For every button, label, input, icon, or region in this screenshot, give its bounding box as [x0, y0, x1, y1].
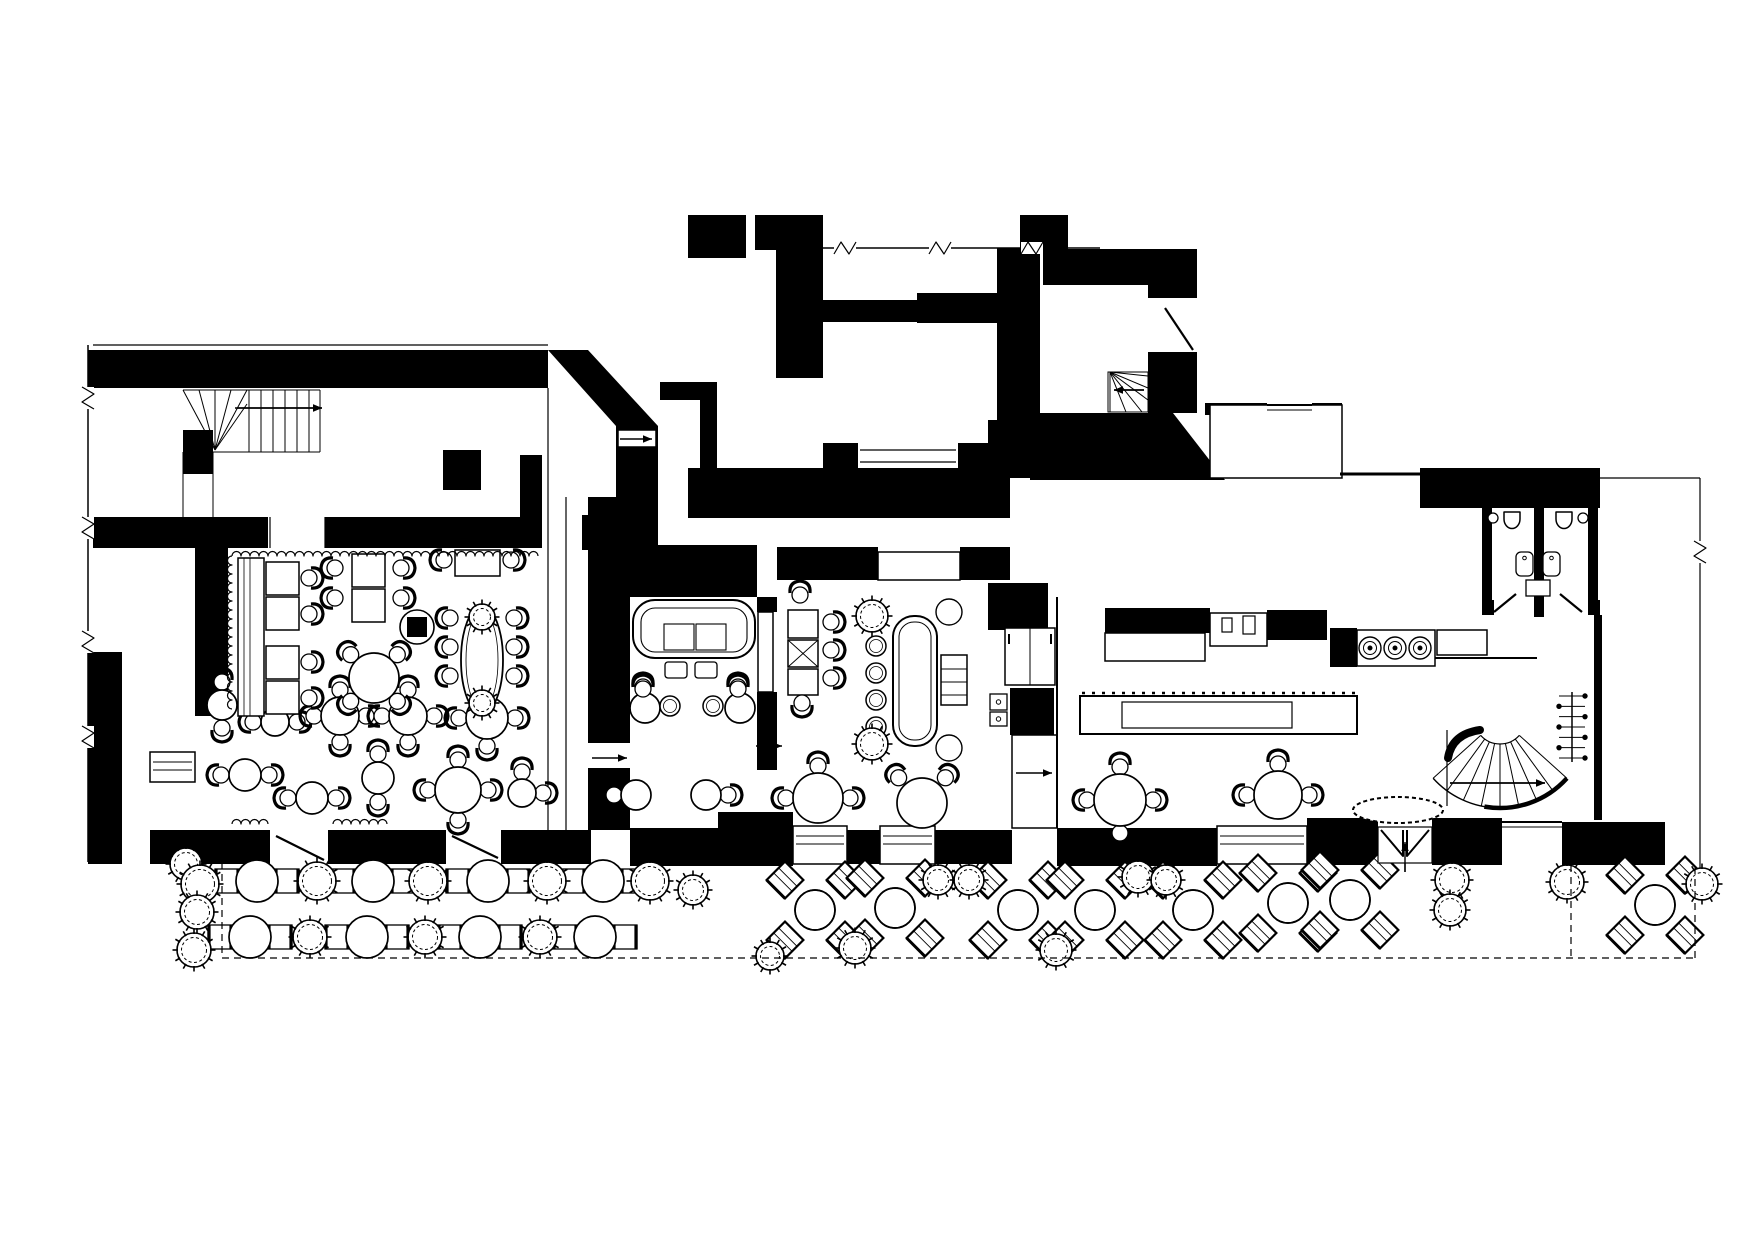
- door-leaf: [1165, 308, 1193, 350]
- circle: [823, 670, 839, 686]
- chair: [507, 708, 529, 728]
- round-seat: [936, 735, 962, 761]
- circle: [1583, 715, 1587, 719]
- terrace-table: [352, 860, 394, 902]
- circle: [506, 668, 522, 684]
- wall: [443, 450, 481, 490]
- wall-break-mark: [82, 517, 94, 539]
- wall: [960, 547, 1010, 580]
- wall: [1588, 600, 1600, 615]
- table-group: [600, 780, 651, 810]
- terrace-table: [459, 916, 501, 958]
- chair: [512, 758, 532, 780]
- wall: [501, 830, 591, 864]
- chair: [506, 666, 528, 686]
- sink: [1543, 552, 1560, 576]
- circle: [301, 606, 317, 622]
- door-leaf: [276, 836, 324, 860]
- terrace-chair: [1240, 915, 1277, 952]
- circle: [177, 933, 211, 967]
- circle: [792, 587, 808, 603]
- wall: [935, 830, 1012, 864]
- wall-break-mark: [1694, 541, 1706, 563]
- circle: [442, 610, 458, 626]
- chair: [436, 608, 458, 628]
- chair: [728, 675, 748, 697]
- chair: [301, 652, 323, 672]
- chair: [368, 740, 388, 762]
- wall: [88, 652, 122, 864]
- chair: [823, 640, 845, 660]
- circle: [327, 590, 343, 606]
- rect: [941, 655, 967, 705]
- terrace-chair: [1302, 912, 1339, 949]
- circle: [293, 920, 327, 954]
- scallop-border: [232, 820, 268, 825]
- square-table: [266, 681, 299, 714]
- path: [1504, 512, 1520, 529]
- circle: [327, 560, 343, 576]
- circle: [442, 668, 458, 684]
- circle: [823, 614, 839, 630]
- round-table: [349, 653, 399, 703]
- bar-island-inner: [1122, 702, 1292, 728]
- wall: [718, 812, 793, 866]
- circle: [606, 787, 622, 803]
- square-table: [266, 562, 299, 595]
- chair: [1233, 785, 1255, 805]
- circle: [842, 790, 858, 806]
- circle: [507, 710, 523, 726]
- chair: [414, 780, 436, 800]
- plant: [1430, 890, 1471, 931]
- terrace-table: [236, 860, 278, 902]
- line: [215, 390, 247, 450]
- circle: [370, 794, 386, 810]
- chair: [1301, 785, 1323, 805]
- terrace-diamond-set: [1607, 857, 1704, 954]
- rect: [1107, 922, 1144, 959]
- chair: [506, 608, 528, 628]
- chair: [330, 734, 350, 756]
- circle: [635, 681, 651, 697]
- circle: [1583, 694, 1587, 698]
- terrace-table: [467, 860, 509, 902]
- chair: [823, 612, 845, 632]
- circle: [1583, 756, 1587, 760]
- wall: [757, 692, 777, 770]
- fridge-cabinet: [1005, 628, 1055, 685]
- banquette-bench: [238, 558, 264, 716]
- wall: [93, 517, 268, 548]
- chair: [823, 668, 845, 688]
- wall: [1267, 610, 1327, 640]
- circle: [409, 862, 447, 900]
- circle: [703, 696, 723, 716]
- wall: [1594, 615, 1602, 820]
- round-table: [229, 759, 261, 791]
- chair: [321, 558, 343, 578]
- chair: [436, 637, 458, 657]
- wall: [1148, 249, 1197, 298]
- sink-fixture: [1222, 618, 1232, 632]
- counter: [1105, 633, 1205, 661]
- wall: [1432, 818, 1502, 865]
- terrace-diamond-set: [1302, 852, 1399, 949]
- round-table: [508, 779, 536, 807]
- wall-break-mark: [929, 242, 951, 254]
- chair: [301, 688, 323, 708]
- chair: [535, 783, 557, 803]
- circle: [660, 696, 680, 716]
- round-table: [207, 690, 237, 720]
- circle: [370, 746, 386, 762]
- square-table: [352, 589, 385, 622]
- circle: [1112, 825, 1128, 841]
- round-table: [793, 773, 843, 823]
- round-table: [630, 693, 660, 723]
- circle: [1270, 756, 1286, 772]
- floor-plan-page: [0, 0, 1754, 1241]
- round-table: [1094, 774, 1146, 826]
- chair: [212, 720, 232, 742]
- circle: [374, 708, 390, 724]
- circle: [1418, 646, 1422, 650]
- terrace-table: [346, 916, 388, 958]
- circle: [1301, 787, 1317, 803]
- chair: [1110, 753, 1130, 775]
- terrace-unit: [331, 860, 415, 902]
- counter: [878, 552, 960, 580]
- chair: [772, 788, 794, 808]
- circle: [213, 767, 229, 783]
- chair: [301, 568, 323, 588]
- terrace-table: [582, 860, 624, 902]
- circle: [426, 708, 442, 724]
- espresso-machine: [990, 694, 1007, 710]
- terrace-chair: [1607, 917, 1644, 954]
- window-bench: [793, 826, 847, 864]
- sofa-stool: [665, 662, 687, 678]
- coat-rack: [1557, 692, 1587, 762]
- wall: [823, 443, 858, 470]
- terrace-chair: [1205, 922, 1242, 959]
- plant: [404, 916, 447, 959]
- chair: [792, 695, 812, 717]
- wall-break-mark: [1021, 242, 1043, 254]
- plant: [852, 596, 893, 637]
- chair: [480, 780, 502, 800]
- circle: [514, 764, 530, 780]
- chair: [436, 666, 458, 686]
- circle: [823, 642, 839, 658]
- chair: [368, 794, 388, 816]
- direction-arrow: [592, 754, 627, 762]
- round-table: [897, 778, 947, 828]
- circle: [1557, 746, 1561, 750]
- plant: [289, 916, 332, 959]
- circle: [730, 681, 746, 697]
- line: [215, 404, 247, 450]
- circle: [1239, 787, 1255, 803]
- circle: [866, 690, 886, 710]
- wall: [700, 400, 717, 470]
- path: [1556, 512, 1572, 529]
- line: [1505, 743, 1518, 806]
- toilet: [1504, 512, 1520, 529]
- circle: [1079, 792, 1095, 808]
- circle: [535, 785, 551, 801]
- circle: [480, 782, 496, 798]
- circle: [450, 752, 466, 768]
- arrow-head: [313, 404, 322, 412]
- wall: [1010, 688, 1054, 735]
- toilet: [1556, 512, 1572, 529]
- rect: [907, 920, 944, 957]
- chair: [328, 788, 350, 808]
- circle: [469, 604, 495, 630]
- circle: [479, 738, 495, 754]
- chair: [1145, 790, 1167, 810]
- circle: [301, 570, 317, 586]
- circle: [1557, 725, 1561, 729]
- rect: [1108, 372, 1148, 412]
- circle: [810, 758, 826, 774]
- circle: [393, 560, 409, 576]
- rect: [1145, 922, 1182, 959]
- wall: [777, 547, 878, 580]
- rect: [1302, 912, 1339, 949]
- line: [1519, 735, 1567, 778]
- wall: [150, 830, 270, 864]
- chair: [261, 765, 283, 785]
- espresso-machine: [990, 712, 1007, 726]
- scallop-border: [333, 820, 387, 825]
- window-bench: [880, 826, 935, 864]
- wall-break-mark: [82, 631, 94, 653]
- round-table: [691, 780, 721, 810]
- chair: [301, 604, 323, 624]
- circle: [306, 708, 322, 724]
- wall-break-mark: [82, 387, 94, 409]
- chair: [808, 752, 828, 774]
- terrace-unit: [446, 860, 530, 902]
- circle: [1393, 646, 1397, 650]
- square-table: [266, 646, 299, 679]
- room-outline: [1012, 735, 1057, 828]
- table-group: [207, 759, 283, 791]
- circle: [1583, 735, 1587, 739]
- circle: [442, 639, 458, 655]
- window-bench: [150, 752, 195, 782]
- circle: [528, 862, 566, 900]
- wall: [630, 545, 757, 597]
- chair: [321, 588, 343, 608]
- line: [1481, 743, 1494, 806]
- circle: [301, 690, 317, 706]
- staircase-winder: [1108, 372, 1148, 412]
- stool: [866, 690, 886, 710]
- wall: [1420, 468, 1600, 508]
- toilet-roll: [1488, 513, 1498, 523]
- table-group: [691, 780, 742, 810]
- path: [1481, 735, 1520, 744]
- terrace-unit: [215, 860, 299, 902]
- rect: [1205, 922, 1242, 959]
- terrace-chair: [1107, 922, 1144, 959]
- floor-plan-svg: [0, 0, 1754, 1241]
- round-table: [725, 693, 755, 723]
- plant: [1147, 861, 1186, 900]
- door-leaf: [452, 836, 498, 858]
- circle: [631, 862, 669, 900]
- circle: [280, 790, 296, 806]
- wall: [776, 248, 823, 378]
- terrace-unit: [325, 916, 409, 958]
- wall: [757, 597, 777, 612]
- sofa: [633, 600, 755, 678]
- chair: [1268, 750, 1288, 772]
- terrace-chair: [1667, 917, 1704, 954]
- stool: [866, 663, 886, 683]
- circle: [1435, 863, 1469, 897]
- sink: [1516, 552, 1533, 576]
- counter: [1437, 630, 1487, 655]
- circle: [720, 787, 736, 803]
- direction-arrow: [1450, 779, 1545, 787]
- circle: [1557, 704, 1561, 708]
- plant: [674, 871, 713, 910]
- wall: [847, 830, 880, 864]
- terrace-unit: [208, 916, 292, 958]
- staircase-spiral: [1433, 730, 1567, 808]
- wall: [688, 215, 746, 258]
- circle: [866, 636, 886, 656]
- circle: [1145, 792, 1161, 808]
- wall: [755, 215, 823, 250]
- wall: [917, 293, 999, 323]
- round-table: [621, 780, 651, 810]
- chair: [393, 558, 415, 578]
- wall-break-mark: [834, 242, 856, 254]
- round-table: [435, 767, 481, 813]
- plant: [294, 858, 341, 905]
- table-group: [274, 782, 350, 814]
- toilet-roll: [1578, 513, 1588, 523]
- counter: [1210, 613, 1267, 646]
- arrow-head: [618, 754, 627, 762]
- circle: [420, 782, 436, 798]
- cleaner-sink: [1526, 580, 1550, 596]
- terrace-table: [229, 916, 271, 958]
- chair: [207, 765, 229, 785]
- circle: [1368, 646, 1372, 650]
- circle: [358, 708, 374, 724]
- circle: [328, 790, 344, 806]
- circle: [298, 862, 336, 900]
- circle: [794, 695, 810, 711]
- circle: [1550, 865, 1584, 899]
- circle: [408, 920, 442, 954]
- sofa-stool: [695, 662, 717, 678]
- circle: [866, 663, 886, 683]
- rect: [1667, 917, 1704, 954]
- wall: [1330, 628, 1357, 667]
- column-core: [407, 617, 427, 637]
- circle: [450, 812, 466, 828]
- round-seat: [936, 599, 962, 625]
- rect: [1205, 862, 1242, 899]
- arrow-head: [773, 742, 782, 750]
- terrace-chair: [907, 920, 944, 957]
- round-table: [296, 782, 328, 814]
- table-group: [207, 668, 237, 742]
- door-leaf: [1560, 594, 1582, 612]
- terrace-chair: [767, 862, 804, 899]
- table-group: [882, 761, 962, 828]
- rect: [767, 862, 804, 899]
- circle: [301, 654, 317, 670]
- stool: [703, 696, 723, 716]
- wall: [1105, 608, 1210, 633]
- chair: [477, 738, 497, 760]
- service-trolley: [941, 655, 967, 705]
- chair: [448, 746, 468, 768]
- table-group: [1233, 750, 1323, 819]
- line: [215, 390, 231, 450]
- wall: [660, 382, 717, 400]
- chair: [274, 788, 296, 808]
- terrace-chair: [1205, 862, 1242, 899]
- circle: [393, 590, 409, 606]
- chair: [720, 785, 742, 805]
- table-group: [362, 740, 394, 816]
- wall-break-mark: [82, 726, 94, 748]
- chair: [633, 675, 653, 697]
- arrow-head: [1536, 779, 1545, 787]
- circle: [332, 734, 348, 750]
- circle: [451, 710, 467, 726]
- rect: [1607, 917, 1644, 954]
- square-table: [788, 610, 818, 638]
- wall: [582, 515, 590, 550]
- counter: [758, 612, 773, 692]
- rect: [1362, 912, 1399, 949]
- circle: [506, 610, 522, 626]
- chair: [842, 788, 864, 808]
- wall: [1148, 352, 1197, 413]
- banquet-table: [893, 616, 937, 746]
- rect: [970, 922, 1007, 959]
- wall: [325, 517, 538, 548]
- circle: [469, 690, 495, 716]
- wall: [88, 350, 548, 388]
- square-table: [788, 669, 818, 695]
- room-outline: [1210, 405, 1342, 478]
- stool: [660, 696, 680, 716]
- rect: [1240, 915, 1277, 952]
- wall: [1043, 249, 1148, 285]
- square-table: [266, 597, 299, 630]
- round-table: [1254, 771, 1302, 819]
- plant: [405, 858, 452, 905]
- terrace-chair: [1145, 922, 1182, 959]
- plant: [519, 916, 562, 959]
- circle: [523, 920, 557, 954]
- wall: [520, 455, 542, 548]
- stair-rail: [1448, 730, 1480, 758]
- stool: [866, 636, 886, 656]
